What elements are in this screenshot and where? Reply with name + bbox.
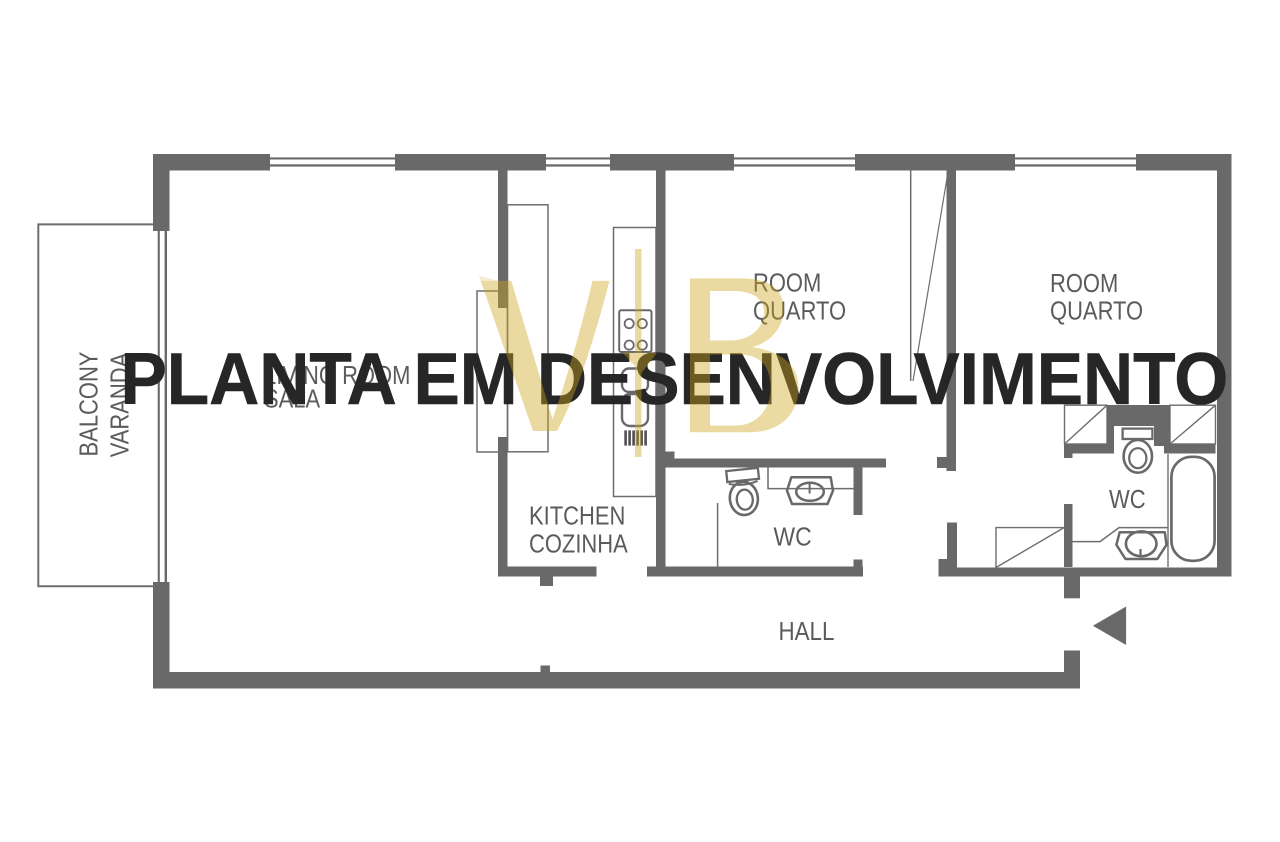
- svg-text:HALL: HALL: [779, 617, 835, 646]
- svg-text:PLANTA EM DESENVOLVIMENTO: PLANTA EM DESENVOLVIMENTO: [121, 338, 1229, 420]
- svg-text:QUARTO: QUARTO: [1050, 297, 1143, 326]
- svg-text:ROOM: ROOM: [1050, 269, 1118, 298]
- svg-text:WC: WC: [1109, 485, 1146, 514]
- svg-text:WC: WC: [774, 523, 812, 552]
- svg-text:KITCHEN: KITCHEN: [529, 502, 625, 531]
- svg-text:BALCONY: BALCONY: [75, 352, 104, 457]
- svg-text:COZINHA: COZINHA: [529, 530, 628, 559]
